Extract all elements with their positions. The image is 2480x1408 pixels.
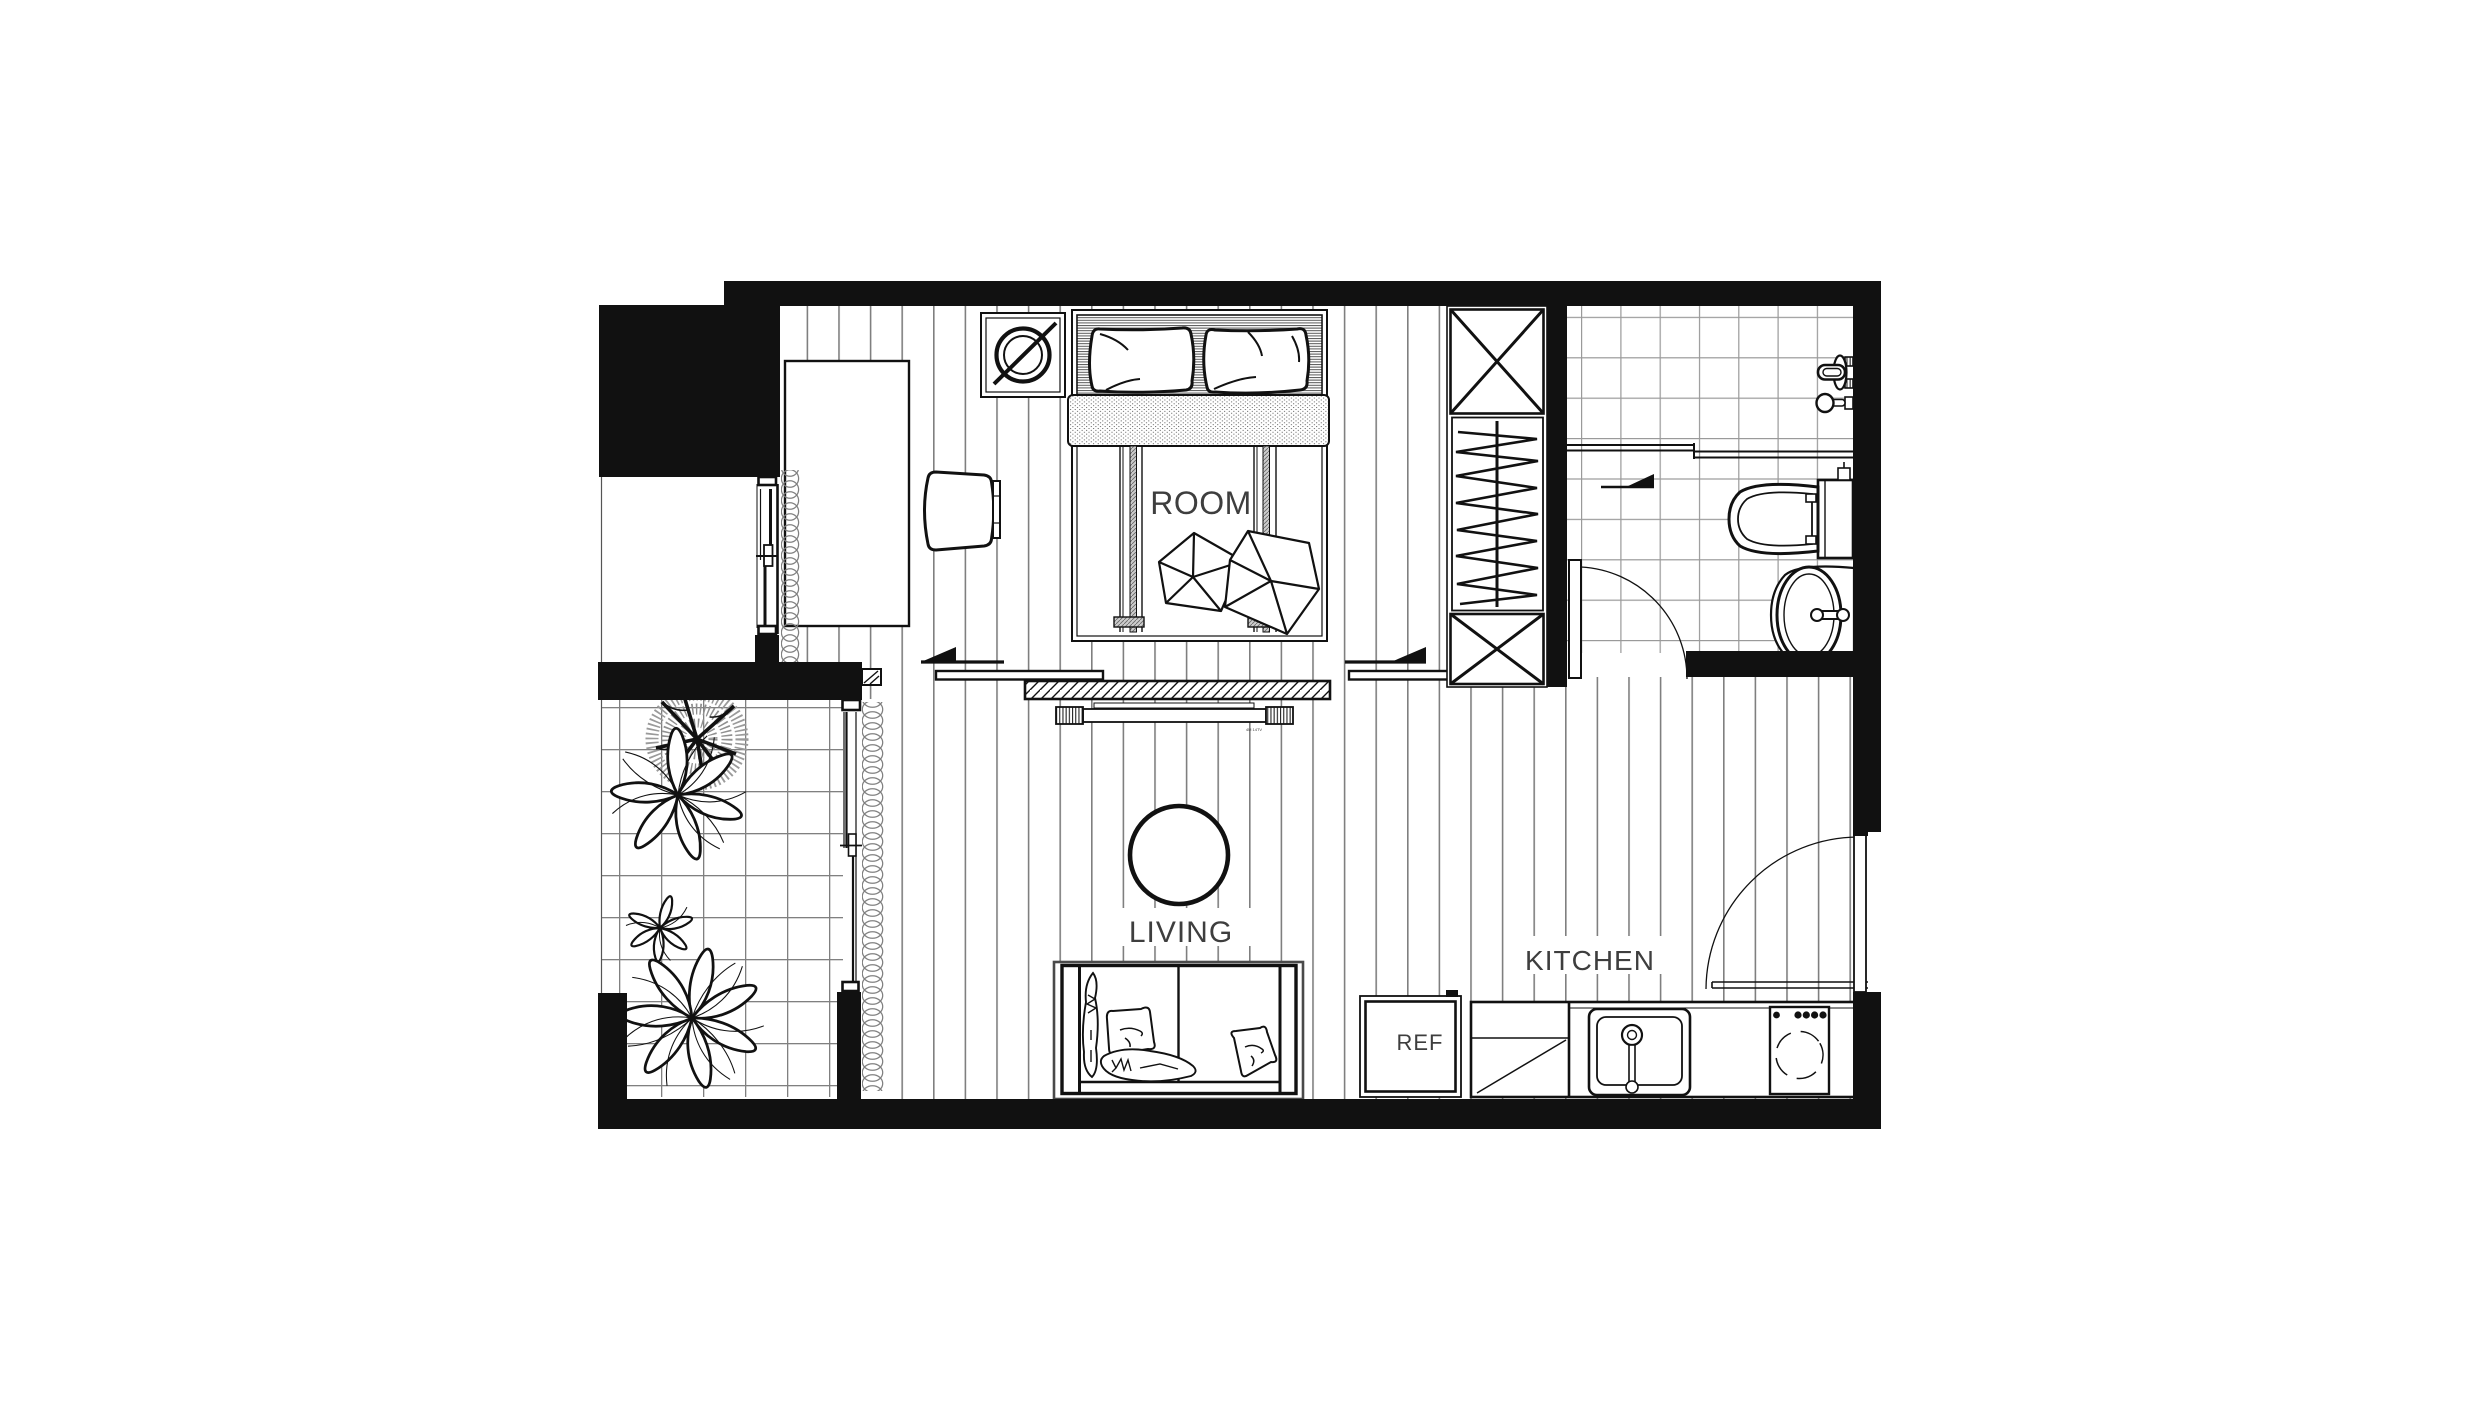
svg-text:LIVING: LIVING xyxy=(1129,916,1233,949)
svg-text:REF: REF xyxy=(1397,1030,1444,1055)
svg-text:KITCHEN: KITCHEN xyxy=(1525,945,1655,976)
svg-text:ROOM: ROOM xyxy=(1150,485,1252,521)
svg-text:4M 14TV: 4M 14TV xyxy=(1246,727,1263,732)
